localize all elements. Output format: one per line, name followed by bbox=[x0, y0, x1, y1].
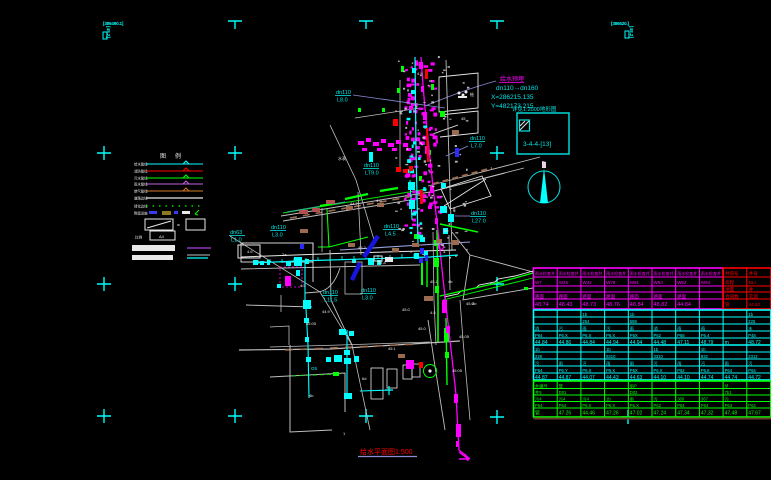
svg-text:P6.Y: P6.Y bbox=[559, 368, 568, 373]
svg-text:雨水检查井: 雨水检查井 bbox=[630, 270, 650, 276]
svg-text:W92: W92 bbox=[677, 280, 687, 285]
svg-text:P6X: P6X bbox=[630, 333, 638, 338]
svg-text:44.63: 44.63 bbox=[630, 375, 643, 381]
svg-text:P6.X: P6.X bbox=[606, 368, 615, 373]
svg-text:L3.0: L3.0 bbox=[362, 296, 373, 302]
svg-text:P64: P64 bbox=[725, 403, 733, 408]
svg-text:污: 污 bbox=[535, 360, 539, 367]
svg-text:污4: 污4 bbox=[582, 396, 589, 403]
svg-text:3310: 3310 bbox=[654, 354, 664, 359]
svg-text:4b: 4b bbox=[448, 279, 453, 284]
svg-text:P6.X: P6.X bbox=[606, 403, 615, 408]
svg-text:X=286215.135: X=286215.135 bbox=[491, 94, 534, 101]
svg-text:229: 229 bbox=[535, 354, 543, 359]
svg-text:44.10: 44.10 bbox=[654, 375, 667, 381]
svg-text:P6.X: P6.X bbox=[559, 333, 568, 338]
svg-text:225: 225 bbox=[748, 319, 756, 324]
svg-text:絵: 絵 bbox=[470, 91, 474, 97]
svg-text:5310: 5310 bbox=[606, 354, 616, 359]
svg-text:雨水检查井: 雨水检查井 bbox=[535, 270, 555, 276]
svg-text:井筒号: 井筒号 bbox=[725, 270, 739, 277]
svg-text:4b: 4b bbox=[309, 393, 314, 398]
svg-text:W91: W91 bbox=[630, 280, 640, 285]
svg-text:附属设施: 附属设施 bbox=[134, 211, 148, 216]
svg-text:P64: P64 bbox=[748, 368, 756, 373]
svg-text:588: 588 bbox=[630, 319, 638, 324]
svg-text:高程: 高程 bbox=[725, 279, 734, 286]
svg-text:雨水检查井: 雨水检查井 bbox=[582, 270, 602, 276]
svg-text:Y=482173.215: Y=482173.215 bbox=[491, 103, 534, 110]
svg-text:1b: 1b bbox=[748, 312, 753, 317]
svg-text:P6.X: P6.X bbox=[630, 403, 639, 408]
svg-text:1b: 1b bbox=[606, 347, 611, 352]
svg-text:48.84: 48.84 bbox=[630, 302, 644, 308]
svg-text:污: 污 bbox=[701, 360, 705, 367]
svg-text:44.72: 44.72 bbox=[748, 375, 761, 381]
svg-text:44.9: 44.9 bbox=[322, 309, 331, 314]
svg-text:污4: 污4 bbox=[559, 396, 566, 403]
svg-text:合同数: 合同数 bbox=[725, 293, 739, 300]
svg-text:3-4-4-[13]: 3-4-4-[13] bbox=[523, 141, 551, 148]
svg-text:44.84: 44.84 bbox=[582, 340, 595, 346]
svg-text:47.67: 47.67 bbox=[748, 411, 761, 417]
svg-text:2a: 2a bbox=[282, 252, 287, 257]
svg-text:LT9.0: LT9.0 bbox=[365, 171, 379, 177]
svg-text:雨水检查井: 雨水检查井 bbox=[701, 270, 721, 276]
svg-text:井号: 井号 bbox=[749, 270, 758, 277]
svg-text:48.43: 48.43 bbox=[559, 302, 573, 308]
svg-text:L8.0: L8.0 bbox=[337, 98, 348, 104]
svg-text:4.6: 4.6 bbox=[376, 198, 382, 203]
svg-text:P6.X: P6.X bbox=[582, 368, 591, 373]
svg-text:P62: P62 bbox=[677, 368, 685, 373]
svg-text:=: = bbox=[177, 223, 180, 229]
svg-text:管: 管 bbox=[535, 410, 540, 417]
svg-text:P62: P62 bbox=[654, 333, 662, 338]
svg-text:路面: 路面 bbox=[535, 293, 544, 300]
svg-text:P6.8: P6.8 bbox=[701, 368, 710, 373]
svg-text:P64: P64 bbox=[677, 403, 685, 408]
svg-text:m: m bbox=[725, 340, 729, 346]
svg-text:井编号: 井编号 bbox=[535, 383, 548, 390]
svg-text:L11.5: L11.5 bbox=[324, 298, 337, 304]
svg-text:P64: P64 bbox=[748, 403, 756, 408]
svg-text:P68: P68 bbox=[677, 333, 685, 338]
svg-text:45.0: 45.0 bbox=[418, 326, 427, 331]
svg-text:48.74: 48.74 bbox=[535, 302, 549, 308]
svg-text:dn110→dn160: dn110→dn160 bbox=[496, 85, 539, 92]
svg-text:P6.X: P6.X bbox=[654, 368, 663, 373]
svg-text:48.73: 48.73 bbox=[582, 302, 596, 308]
svg-text:管: 管 bbox=[725, 301, 730, 308]
svg-text:L7.0: L7.0 bbox=[471, 144, 482, 150]
svg-text:47.26: 47.26 bbox=[559, 411, 572, 417]
svg-text:45.05: 45.05 bbox=[452, 368, 463, 373]
svg-text:地面: 地面 bbox=[725, 286, 734, 293]
svg-text:管: 管 bbox=[559, 383, 563, 390]
svg-text:图例: 图例 bbox=[160, 152, 190, 160]
svg-text:井: 井 bbox=[749, 286, 754, 293]
svg-text:1b: 1b bbox=[701, 347, 706, 352]
svg-text:W25: W25 bbox=[559, 280, 569, 285]
svg-text:7b1: 7b1 bbox=[725, 390, 733, 395]
svg-text:44.94: 44.94 bbox=[630, 340, 643, 346]
svg-text:4.6: 4.6 bbox=[247, 249, 253, 254]
svg-text:P62: P62 bbox=[654, 403, 662, 408]
svg-text:45.2: 45.2 bbox=[358, 245, 367, 250]
svg-text:L3.0: L3.0 bbox=[272, 233, 283, 239]
svg-text:路面: 路面 bbox=[654, 293, 663, 300]
svg-text:48.76: 48.76 bbox=[606, 302, 620, 308]
svg-text:44.8: 44.8 bbox=[378, 260, 387, 265]
svg-text:污: 污 bbox=[725, 396, 729, 403]
svg-text:L4.5: L4.5 bbox=[385, 232, 396, 238]
svg-text:45: 45 bbox=[461, 116, 466, 121]
svg-text:A4: A4 bbox=[159, 234, 165, 239]
svg-text:路面: 路面 bbox=[630, 293, 639, 300]
svg-text:雨水检查井: 雨水检查井 bbox=[654, 270, 674, 276]
svg-text:G5: G5 bbox=[311, 366, 318, 371]
svg-text:254: 254 bbox=[582, 319, 590, 324]
svg-text:44.94: 44.94 bbox=[606, 340, 619, 346]
svg-text:45.0: 45.0 bbox=[466, 301, 475, 306]
svg-text:44.62: 44.62 bbox=[749, 302, 761, 307]
svg-text:47.34: 47.34 bbox=[677, 411, 690, 417]
svg-text:W93: W93 bbox=[654, 280, 664, 285]
svg-text:水表: 水表 bbox=[338, 155, 346, 161]
svg-text:44.84: 44.84 bbox=[677, 302, 691, 308]
svg-text:2312: 2312 bbox=[748, 354, 758, 359]
svg-text:44.74: 44.74 bbox=[701, 375, 714, 381]
svg-text:44.7: 44.7 bbox=[350, 201, 359, 206]
svg-text:6d: 6d bbox=[362, 376, 366, 381]
svg-text:给水预埋: 给水预埋 bbox=[500, 75, 524, 83]
svg-text:雨水检查井: 雨水检查井 bbox=[559, 270, 579, 276]
svg-text:45.1: 45.1 bbox=[388, 346, 397, 351]
svg-text:47.24: 47.24 bbox=[654, 411, 667, 417]
svg-text:47.48: 47.48 bbox=[725, 411, 738, 417]
svg-text:污: 污 bbox=[559, 325, 563, 332]
svg-text:1b: 1b bbox=[654, 347, 659, 352]
svg-text:W79: W79 bbox=[606, 280, 616, 285]
svg-text:雨水检查井: 雨水检查井 bbox=[677, 270, 697, 276]
svg-text:48.79: 48.79 bbox=[701, 340, 714, 346]
svg-text:污: 污 bbox=[748, 360, 752, 367]
svg-text:消: 消 bbox=[654, 325, 658, 332]
svg-text:P64: P64 bbox=[535, 333, 543, 338]
svg-text:污: 污 bbox=[606, 325, 610, 332]
svg-text:P64: P64 bbox=[535, 403, 543, 408]
svg-text:P6.4: P6.4 bbox=[701, 333, 710, 338]
svg-text:P6.X: P6.X bbox=[582, 403, 591, 408]
svg-text:井5: 井5 bbox=[535, 389, 542, 396]
svg-text:P6.X: P6.X bbox=[606, 333, 615, 338]
svg-text:实测: 实测 bbox=[749, 293, 758, 300]
svg-text:L1.0: L1.0 bbox=[231, 238, 242, 244]
svg-text:D02: D02 bbox=[630, 390, 638, 395]
svg-text:[386520.]: [386520.] bbox=[611, 21, 630, 26]
svg-text:47.26: 47.26 bbox=[606, 411, 619, 417]
svg-text:路面: 路面 bbox=[559, 293, 568, 300]
svg-text:44.07: 44.07 bbox=[582, 375, 595, 381]
svg-text:367: 367 bbox=[701, 397, 709, 402]
svg-text:雨水检查井: 雨水检查井 bbox=[606, 270, 626, 276]
svg-text:路面: 路面 bbox=[582, 293, 591, 300]
svg-text:1b: 1b bbox=[535, 347, 540, 352]
svg-text:932: 932 bbox=[701, 354, 709, 359]
svg-text:污: 污 bbox=[654, 396, 658, 403]
svg-text:路面: 路面 bbox=[606, 293, 615, 300]
svg-text:4.5: 4.5 bbox=[300, 283, 306, 288]
svg-text:比例: 比例 bbox=[135, 235, 143, 240]
svg-text:1b: 1b bbox=[606, 397, 611, 402]
svg-text:44.74: 44.74 bbox=[725, 375, 738, 381]
svg-text:44.87: 44.87 bbox=[535, 375, 548, 381]
svg-text:44.46: 44.46 bbox=[582, 411, 595, 417]
svg-text:44.10: 44.10 bbox=[677, 375, 690, 381]
svg-text:W42: W42 bbox=[582, 280, 592, 285]
svg-text:DLI: DLI bbox=[749, 280, 756, 285]
svg-text:污: 污 bbox=[582, 360, 586, 367]
svg-text:47.11: 47.11 bbox=[677, 340, 689, 346]
svg-text:W7: W7 bbox=[535, 280, 542, 285]
svg-text:P48: P48 bbox=[748, 333, 756, 338]
svg-text:380: 380 bbox=[677, 397, 685, 402]
svg-text:44.43: 44.43 bbox=[606, 375, 619, 381]
svg-text:4.5: 4.5 bbox=[430, 310, 436, 315]
svg-text:路面: 路面 bbox=[677, 293, 686, 300]
svg-text:污: 污 bbox=[654, 360, 658, 367]
svg-text:P64: P64 bbox=[559, 403, 567, 408]
svg-text:1b: 1b bbox=[582, 312, 587, 317]
svg-text:48.72: 48.72 bbox=[748, 340, 761, 346]
svg-text:45.05: 45.05 bbox=[459, 334, 470, 339]
svg-text:污4: 污4 bbox=[535, 396, 542, 403]
svg-text:45.1: 45.1 bbox=[430, 279, 439, 284]
svg-text:P64: P64 bbox=[701, 403, 709, 408]
svg-text:45.0: 45.0 bbox=[402, 307, 411, 312]
svg-text:D01: D01 bbox=[559, 390, 567, 395]
svg-text:47.32: 47.32 bbox=[701, 411, 714, 417]
svg-text:L27.0: L27.0 bbox=[472, 219, 486, 225]
svg-text:1b: 1b bbox=[630, 312, 635, 317]
svg-text:P6.X: P6.X bbox=[582, 333, 591, 338]
svg-text:给水平面图1:500: 给水平面图1:500 bbox=[360, 447, 413, 456]
svg-text:6b: 6b bbox=[444, 228, 449, 233]
svg-text:4.5: 4.5 bbox=[417, 71, 423, 76]
svg-text:消: 消 bbox=[535, 325, 539, 332]
svg-text:P64: P64 bbox=[535, 368, 543, 373]
svg-text:45.05: 45.05 bbox=[306, 321, 317, 326]
svg-text:P6X: P6X bbox=[630, 368, 638, 373]
svg-text:44.87: 44.87 bbox=[559, 375, 572, 381]
svg-text:[48.2]: [48.2] bbox=[629, 26, 634, 38]
svg-text:48.82: 48.82 bbox=[654, 302, 668, 308]
svg-text:P64: P64 bbox=[725, 368, 733, 373]
svg-text:47.02: 47.02 bbox=[630, 411, 643, 417]
svg-text:44.84: 44.84 bbox=[535, 340, 548, 346]
svg-text:W94: W94 bbox=[701, 280, 711, 285]
svg-text:44.86: 44.86 bbox=[559, 340, 572, 346]
svg-text:44.48: 44.48 bbox=[654, 340, 667, 346]
